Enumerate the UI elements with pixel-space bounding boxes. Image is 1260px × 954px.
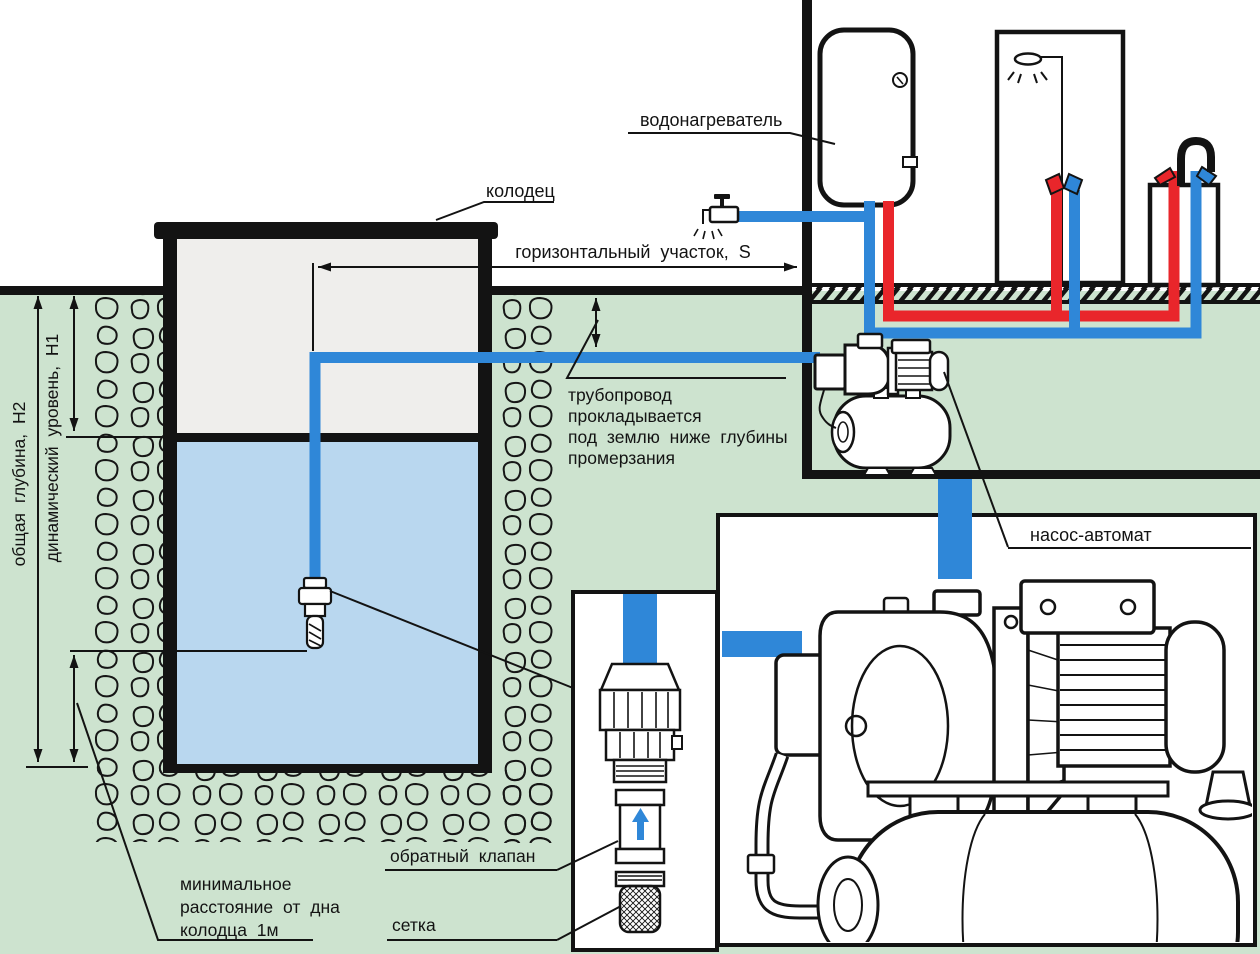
terminal-box-small [892, 340, 930, 353]
detail-pipe-top [938, 479, 972, 579]
motor-foot-base [1200, 801, 1256, 819]
detail-pipe-left [722, 631, 802, 657]
label-min-distance-1: минимальное [180, 874, 291, 894]
ground-line-mid [492, 286, 803, 295]
label-pipeline-note-2: прокладывается [568, 406, 702, 426]
detail-pipe-valve [623, 594, 657, 666]
tank-flange-hub [838, 422, 848, 442]
diagram-canvas: водонагреватель колодец горизонтальный у… [0, 0, 1260, 954]
house-wall [802, 0, 812, 479]
coupling-side-tab [672, 736, 682, 749]
foot-valve-collar [304, 578, 326, 588]
label-dynamic-level: динамический уровень, Н1 [42, 334, 62, 563]
well [154, 222, 498, 773]
well-water-supply-diagram: водонагреватель колодец горизонтальный у… [0, 0, 1260, 954]
label-total-depth: общая глубина, Н2 [9, 402, 29, 567]
water-level-line [163, 433, 492, 442]
label-check-valve: обратный клапан [390, 846, 535, 866]
well-wall-left [163, 239, 177, 773]
well-cap [154, 222, 498, 239]
water-heater-tank [820, 30, 913, 205]
well-wall-right [478, 239, 492, 773]
check-valve-top-nut [616, 790, 664, 805]
well-shaft-air [177, 239, 478, 433]
hose-nut [748, 855, 774, 873]
foot-valve-nut [299, 588, 331, 604]
tap-body [710, 207, 738, 222]
clamp-band [994, 608, 1028, 842]
terminal-bolt [1121, 600, 1135, 614]
well-bottom [163, 764, 492, 773]
pump-body-small [845, 345, 890, 394]
pump-inlet-box [815, 355, 845, 389]
stones-bottom-band [92, 770, 560, 842]
label-pipeline-note-1: трубопровод [568, 385, 672, 405]
coupling-lower-band [606, 730, 674, 760]
heater-side-port [903, 157, 917, 167]
label-well: колодец [486, 181, 555, 201]
motor-body [1058, 628, 1170, 766]
label-mesh: сетка [392, 915, 436, 935]
tap-handle [714, 194, 730, 199]
label-horizontal-run: горизонтальный участок, S [515, 242, 750, 262]
strainer-thread [616, 872, 664, 886]
pump-outlet-port [858, 334, 882, 348]
strainer-mesh [620, 886, 660, 932]
label-pipeline-note-4: промерзания [568, 448, 675, 468]
label-water-heater: водонагреватель [640, 110, 782, 130]
tank-foot [910, 468, 936, 475]
foot-valve-body [305, 604, 325, 616]
label-min-distance-2: расстояние от дна [180, 897, 340, 917]
motor-cap-small [930, 352, 948, 390]
tank-foot [864, 468, 890, 475]
label-pipeline-note-3: под землю ниже глубины [568, 427, 788, 447]
tank-flange-hub-big [834, 879, 862, 931]
stones-right-band [490, 295, 560, 843]
sink-cabinet [1150, 185, 1218, 285]
coupling-bell [601, 664, 679, 690]
clamp-bolt [1005, 616, 1017, 628]
motor-end-cap [1166, 622, 1224, 772]
pressure-tank-big [848, 812, 1238, 954]
label-pump-station: насос-автомат [1030, 525, 1152, 545]
stones-left-band [94, 295, 163, 772]
shower-head-icon [1015, 54, 1041, 65]
terminal-bolt [1041, 600, 1055, 614]
check-valve-bottom-nut [616, 849, 664, 863]
ground-line-left [0, 286, 163, 295]
label-min-distance-3: колодца 1м [180, 920, 279, 940]
base-plate [868, 782, 1168, 796]
water-heater [820, 30, 917, 205]
